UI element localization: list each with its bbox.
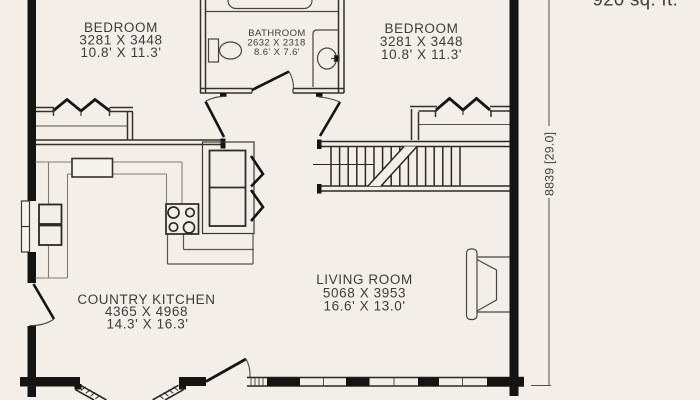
svg-text:10.8' X 11.3': 10.8' X 11.3' [381,47,462,62]
svg-text:8839 [29.0]: 8839 [29.0] [543,132,557,196]
svg-text:920 sq. ft.: 920 sq. ft. [593,0,679,10]
svg-text:10.8' X 11.3': 10.8' X 11.3' [80,45,161,60]
svg-text:14.3' X 16.3': 14.3' X 16.3' [106,317,188,332]
svg-text:8.6' X 7.6': 8.6' X 7.6' [254,47,300,58]
svg-text:16.6' X 13.0': 16.6' X 13.0' [323,299,405,314]
